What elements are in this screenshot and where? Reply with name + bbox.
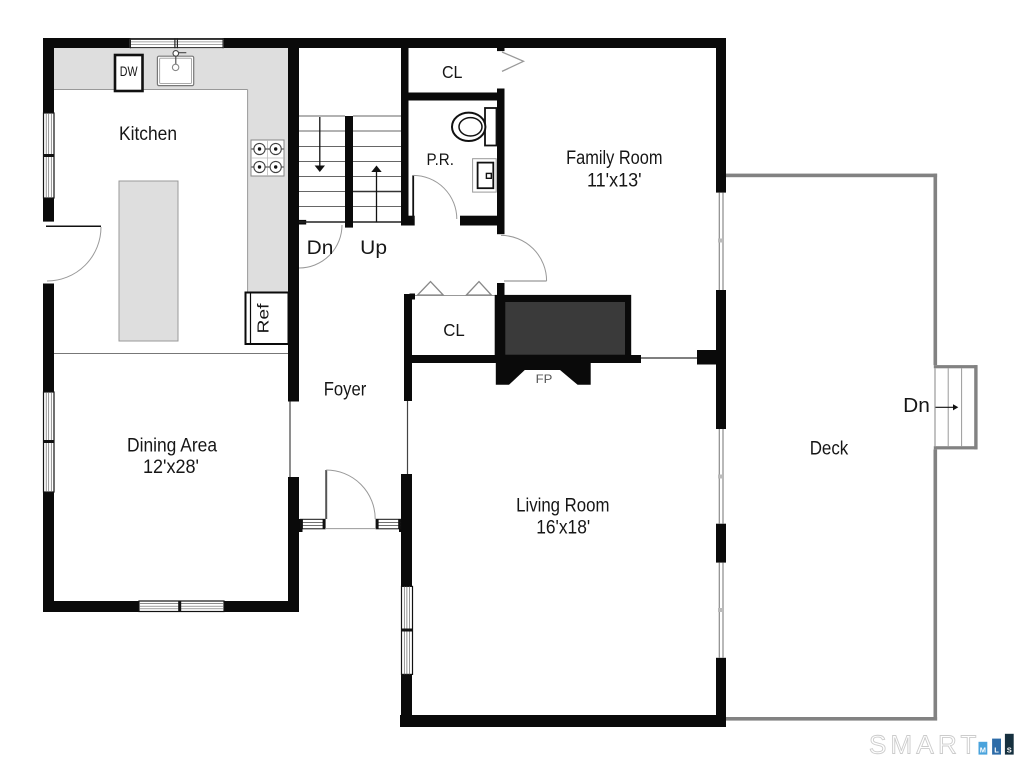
svg-text:12'x28': 12'x28' xyxy=(143,457,199,478)
svg-text:Dn: Dn xyxy=(903,394,930,417)
svg-text:L: L xyxy=(994,746,999,755)
svg-text:16'x18': 16'x18' xyxy=(536,518,590,539)
svg-text:Family Room: Family Room xyxy=(566,148,662,169)
svg-text:M: M xyxy=(980,746,986,755)
svg-text:Up: Up xyxy=(360,237,387,259)
svg-text:CL: CL xyxy=(443,320,465,340)
svg-text:S: S xyxy=(1007,746,1012,755)
svg-text:Ref: Ref xyxy=(256,303,273,334)
svg-text:Dining Area: Dining Area xyxy=(127,436,217,457)
svg-text:Deck: Deck xyxy=(810,438,849,459)
svg-text:FP: FP xyxy=(536,372,553,386)
svg-text:CL: CL xyxy=(442,62,463,82)
svg-text:Living Room: Living Room xyxy=(516,495,609,516)
svg-text:Kitchen: Kitchen xyxy=(119,124,177,145)
svg-text:Dn: Dn xyxy=(307,237,334,259)
svg-text:11'x13': 11'x13' xyxy=(587,170,642,191)
svg-text:SMART: SMART xyxy=(869,730,981,760)
svg-text:P.R.: P.R. xyxy=(426,150,454,169)
svg-text:Foyer: Foyer xyxy=(324,379,367,400)
svg-text:DW: DW xyxy=(120,63,138,79)
